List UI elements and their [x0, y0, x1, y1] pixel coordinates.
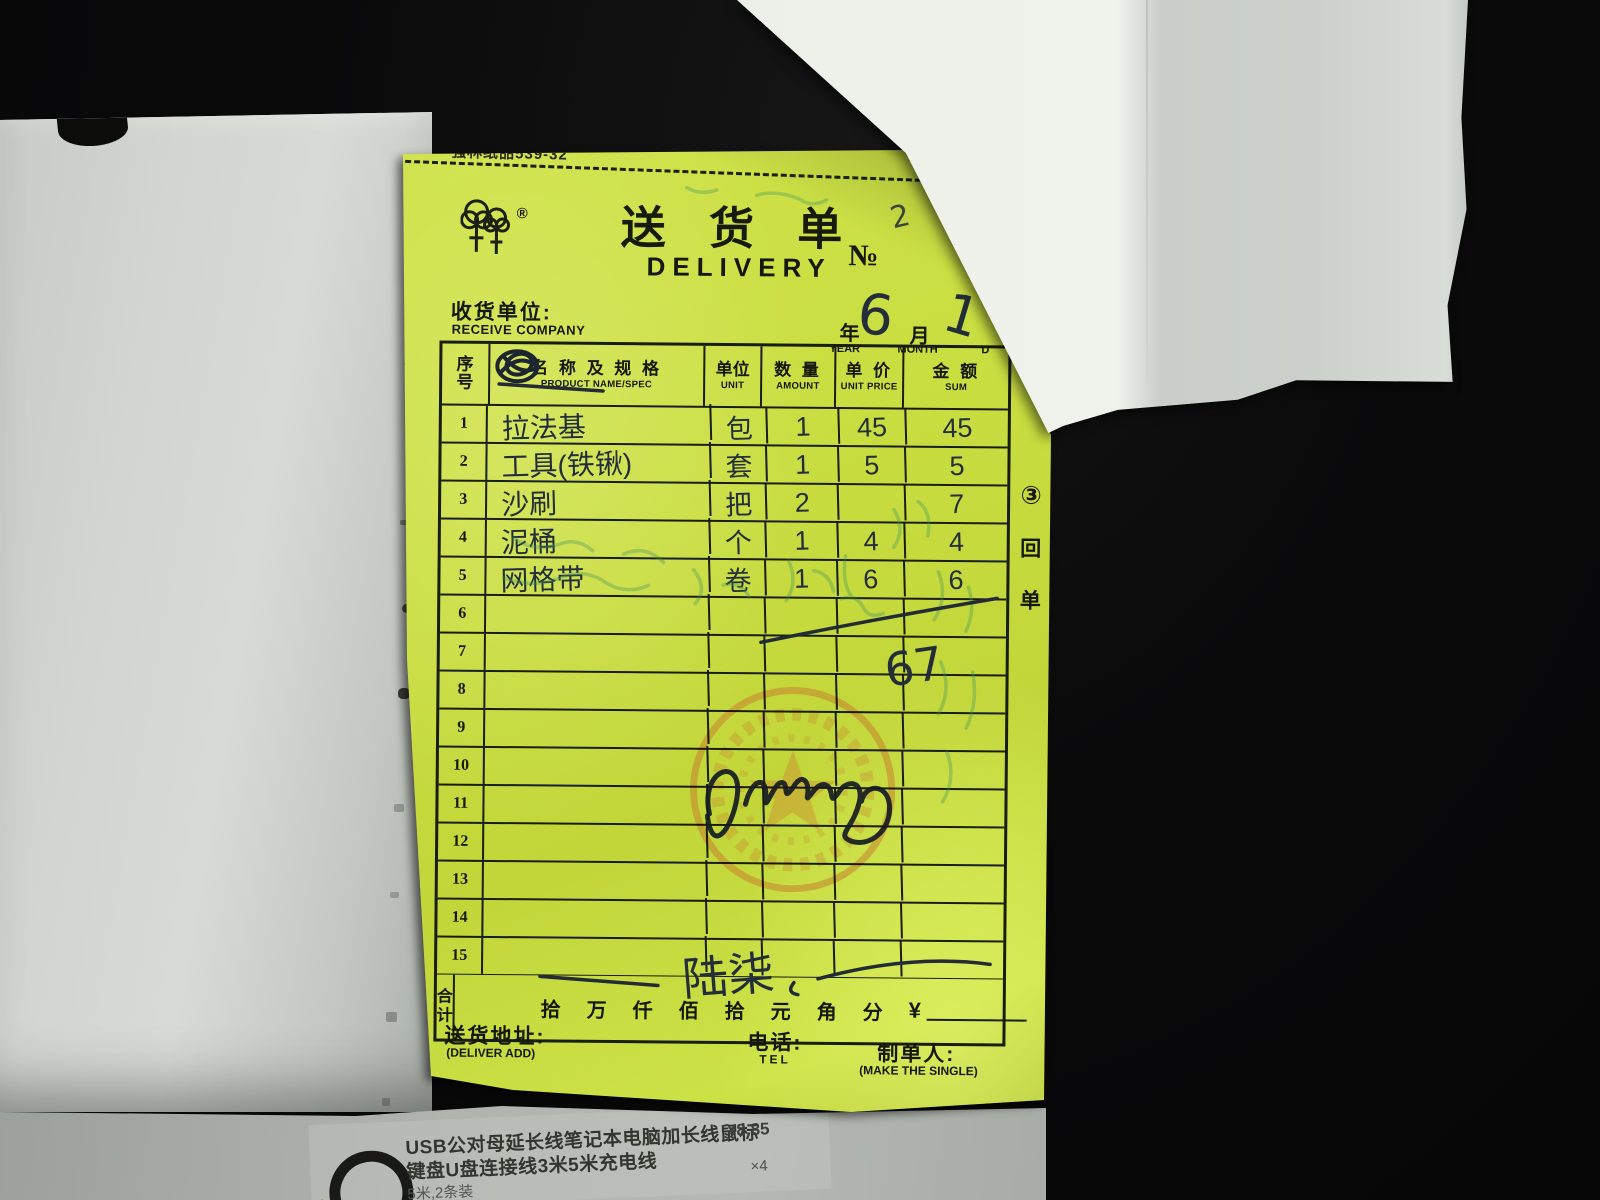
photo-of-delivery-note: USB公对母延长线笔记本电脑加长线鼠标 键盘U盘连接线3米5米充电线 5米,2条… [0, 0, 1600, 1200]
cell-sum [902, 903, 1004, 942]
cell-no: 13 [438, 862, 485, 898]
amount-unit-char: 万 [587, 993, 607, 1022]
cell-price [835, 902, 903, 940]
handwritten-signature [687, 752, 928, 874]
cell-name [484, 860, 709, 902]
cell-price: 6 [838, 560, 906, 598]
table-row: 3沙刷把27 [441, 482, 1007, 525]
cell-unit: 个 [711, 521, 767, 558]
product-quantity: ×4 [750, 1157, 768, 1175]
cell-name [485, 746, 710, 788]
total-in-words-handwritten: 陆柒 [680, 937, 777, 1010]
registered-mark: ® [517, 205, 528, 222]
cell-no: 9 [439, 710, 486, 746]
cell-no: 15 [437, 938, 484, 974]
cell-no: 14 [437, 900, 484, 936]
cell-name [484, 822, 709, 864]
table-row: 5网格带卷166 [440, 558, 1006, 601]
top-right-paper [737, 0, 1468, 436]
paper-surface [737, 0, 1468, 436]
cell-name: 泥桶 [487, 518, 712, 560]
product-spec: 5米,2条装 [407, 1180, 474, 1200]
cell-no: 11 [438, 786, 485, 822]
cell-name [483, 898, 708, 940]
amount-unit-char: 角 [817, 995, 837, 1024]
cell-amount: 1 [766, 560, 839, 598]
tel-en: TEL [759, 1052, 791, 1066]
cell-unit [710, 597, 766, 634]
amount-unit-char: 拾 [541, 993, 561, 1022]
cell-amount: 1 [767, 446, 840, 484]
cell-sum [903, 713, 1005, 752]
amount-unit-char: 仟 [633, 994, 653, 1023]
cell-name [485, 708, 710, 750]
amount-unit-char: 分 [863, 996, 883, 1025]
cell-no: 2 [441, 444, 488, 480]
cell-name [484, 784, 709, 826]
table-row: 4泥桶个144 [441, 520, 1007, 563]
cell-unit: 套 [712, 445, 768, 482]
cell-no: 1 [442, 406, 489, 442]
paper-fold [1146, 0, 1148, 384]
cell-name: 工具(铁锹) [487, 442, 712, 484]
cell-name: 网格带 [486, 556, 711, 598]
table-row: 2工具(铁锹)套155 [441, 444, 1007, 487]
table-row: 14 [437, 900, 1003, 943]
deliver-address-en: (DELIVER ADD) [446, 1046, 535, 1061]
paper-mill-code: 强林纸品539-32 [451, 141, 568, 165]
amount-underline [927, 1001, 1027, 1022]
torn-edge-hole [56, 108, 129, 149]
cell-name [483, 936, 708, 978]
cell-no: 7 [440, 634, 487, 670]
cell-no: 6 [440, 596, 487, 632]
cell-sum: 4 [905, 523, 1007, 562]
cell-name [485, 670, 710, 712]
cell-price: 5 [839, 446, 907, 484]
bottom-label-paper: USB公对母延长线笔记本电脑加长线鼠标 键盘U盘连接线3米5米充电线 5米,2条… [0, 1106, 1046, 1200]
cell-unit [708, 901, 764, 938]
cell-name [486, 594, 711, 636]
cell-price: 4 [838, 522, 906, 560]
cell-no: 5 [440, 558, 487, 594]
maker-en: (MAKE THE SINGLE) [859, 1063, 978, 1078]
cell-amount [765, 636, 838, 674]
cell-price [839, 484, 907, 522]
cell-no: 10 [439, 748, 486, 784]
cell-amount: 1 [766, 522, 839, 560]
copy-number-mark: ③ 回 单 [1015, 481, 1046, 615]
cell-amount [765, 598, 838, 636]
cell-unit: 卷 [711, 559, 767, 596]
cell-sum [901, 941, 1003, 980]
cell-name: 拉法基 [488, 404, 713, 446]
crossed-out-scribble [491, 344, 547, 388]
cell-sum: 6 [905, 561, 1007, 600]
cell-no: 4 [441, 520, 488, 556]
table-row: 6 [440, 596, 1006, 639]
cell-no: 3 [441, 482, 488, 518]
cell-sum [904, 599, 1006, 638]
cell-no: 12 [438, 824, 485, 860]
left-background-paper [0, 112, 432, 1112]
cell-no: 8 [439, 672, 486, 708]
cell-unit [710, 635, 766, 672]
cell-sum: 7 [905, 485, 1007, 524]
product-price: ¥8.85 [727, 1119, 770, 1141]
cell-amount [763, 902, 836, 940]
double-tree-logo-icon: ® [460, 194, 526, 264]
currency-symbol: ¥ [909, 998, 921, 1024]
receiver-label-en: RECEIVE COMPANY [452, 322, 586, 338]
cell-amount: 2 [766, 484, 839, 522]
header-no: 序 号 [442, 344, 490, 404]
cell-unit: 把 [711, 483, 767, 520]
cell-name: 沙刷 [487, 480, 712, 522]
cell-sum: 5 [906, 447, 1008, 486]
cell-price [838, 598, 906, 636]
cell-name [486, 632, 711, 674]
print-fragment [382, 1098, 390, 1106]
cell-price [835, 940, 903, 978]
